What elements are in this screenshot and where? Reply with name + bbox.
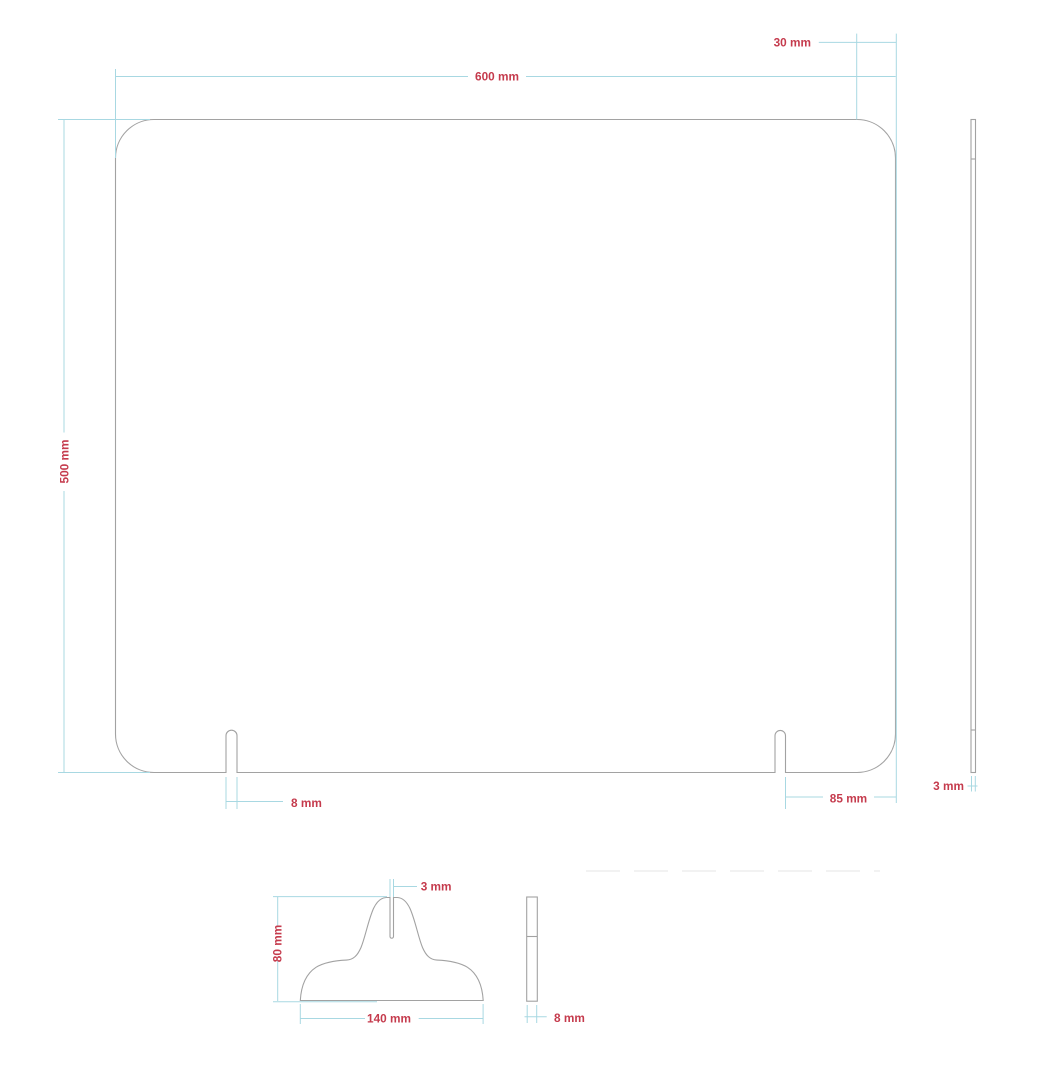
svg-text:8 mm: 8 mm (291, 796, 322, 810)
svg-text:8 mm: 8 mm (554, 1011, 585, 1025)
svg-text:600 mm: 600 mm (475, 70, 519, 84)
svg-text:80 mm: 80 mm (271, 925, 285, 962)
svg-text:500 mm: 500 mm (58, 440, 72, 484)
svg-text:140 mm: 140 mm (367, 1012, 411, 1026)
svg-text:3 mm: 3 mm (933, 779, 964, 793)
svg-text:3 mm: 3 mm (421, 880, 452, 894)
svg-text:30 mm: 30 mm (774, 36, 811, 50)
svg-text:85 mm: 85 mm (830, 791, 867, 805)
